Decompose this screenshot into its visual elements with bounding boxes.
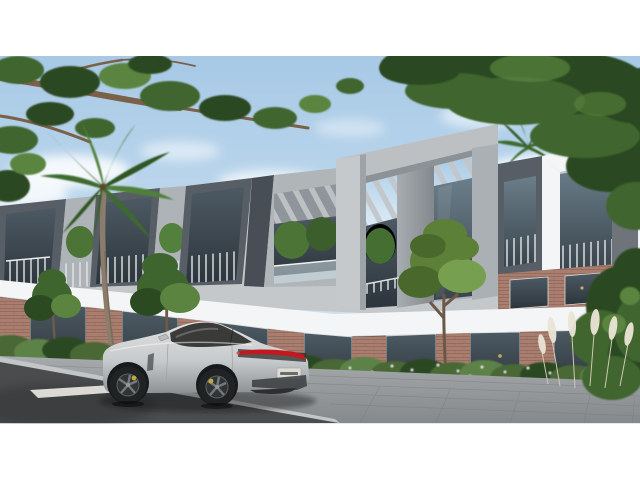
cloud: [315, 119, 385, 137]
brake-caliper: [132, 376, 137, 381]
rendered-image: Photorealistic 3D architectural renderin…: [0, 0, 640, 480]
balcony-tree: [306, 217, 338, 251]
balcony-tree: [274, 221, 310, 259]
balcony-railing: [188, 251, 238, 283]
interior-light: [580, 286, 583, 289]
letterbox-top: [0, 0, 640, 56]
cloud: [140, 141, 220, 161]
pillar-shade: [360, 154, 366, 310]
balcony-tree: [365, 228, 395, 264]
strip-window: [510, 277, 548, 309]
mid-balcony-section: [244, 168, 338, 287]
interior-light: [498, 354, 502, 358]
grey-panel-unit: [498, 156, 542, 278]
brake-caliper: [209, 379, 214, 384]
scene: Photorealistic 3D architectural renderin…: [0, 56, 640, 424]
fender-vent: [147, 353, 154, 371]
letterbox-bottom: [0, 424, 640, 480]
taillight-side-dot: [237, 352, 240, 355]
balcony-tree: [66, 226, 94, 258]
plate-text-smudge: [280, 372, 298, 375]
render-canvas: [0, 56, 640, 424]
